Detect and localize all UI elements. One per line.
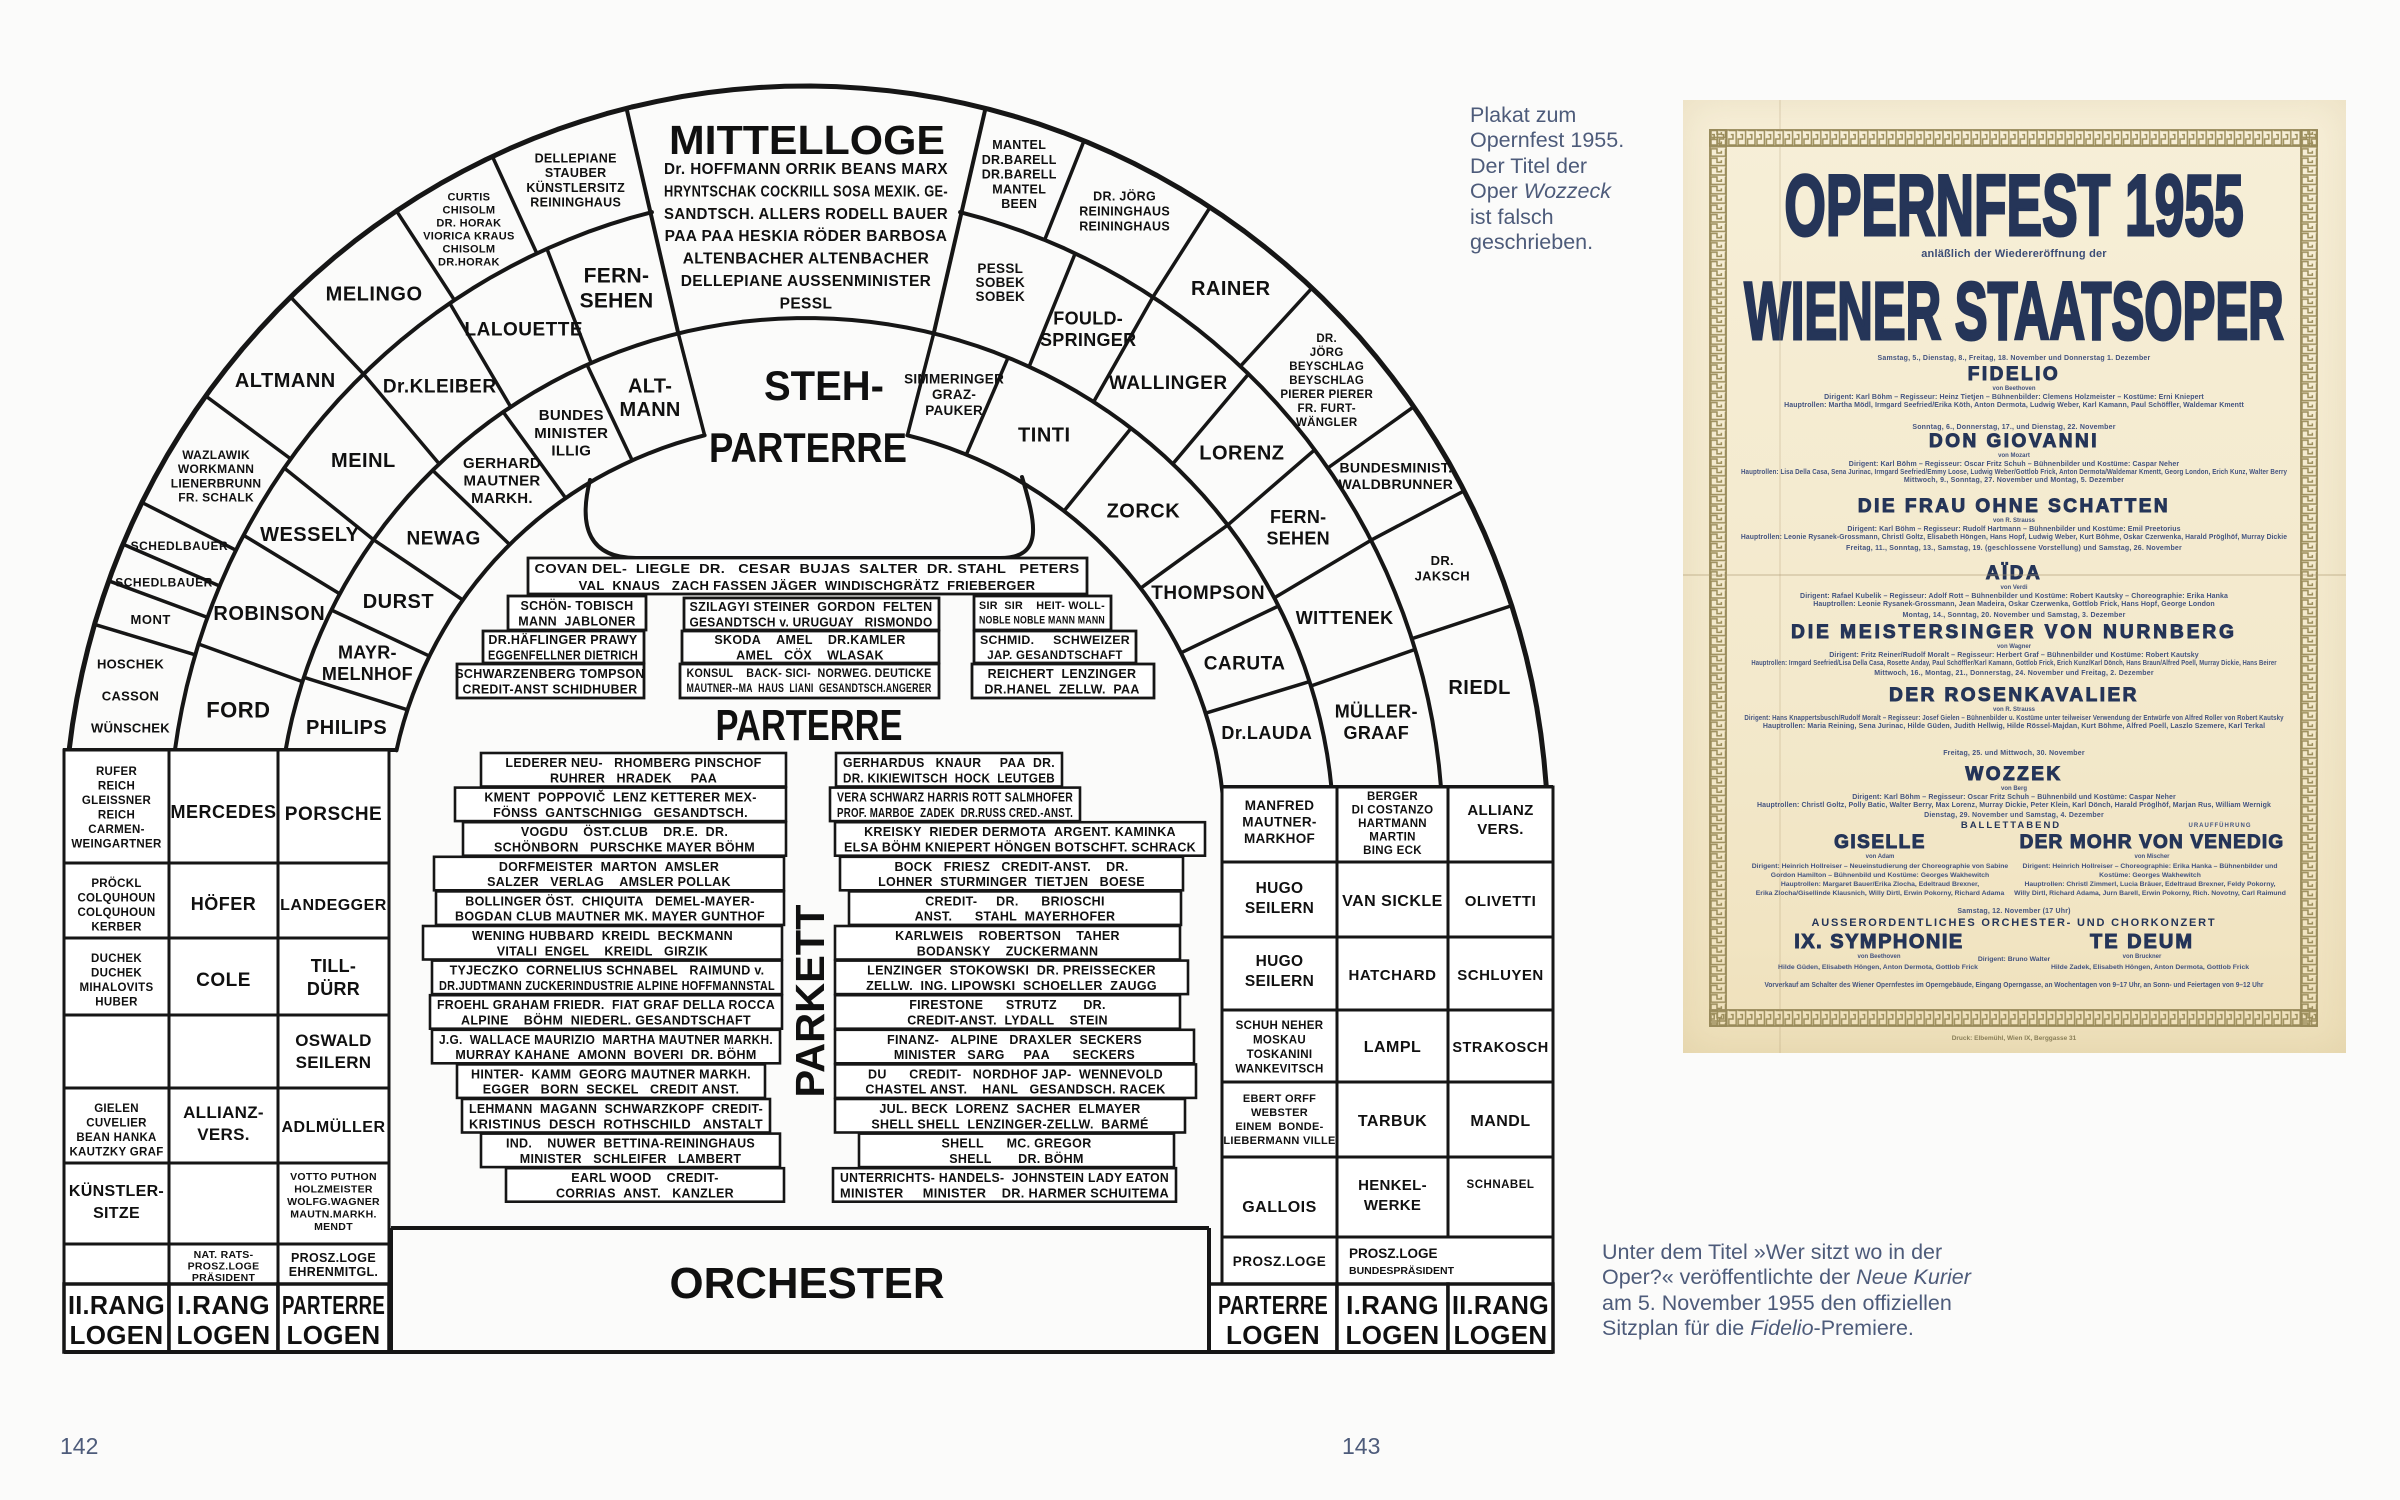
- svg-text:STRAKOSCH: STRAKOSCH: [1452, 1040, 1548, 1056]
- svg-text:ROBINSON: ROBINSON: [213, 603, 325, 625]
- svg-text:EARL WOOD CREDIT-CORRIAS A: EARL WOOD CREDIT-CORRIAS ANST. KANZLER: [556, 1171, 734, 1200]
- svg-text:I.RANGLOGEN: I.RANGLOGEN: [1346, 1290, 1440, 1350]
- svg-text:MONT: MONT: [131, 612, 171, 627]
- svg-text:THOMPSON: THOMPSON: [1151, 583, 1265, 604]
- svg-text:WITTENEK: WITTENEK: [1296, 608, 1394, 628]
- svg-text:RIEDL: RIEDL: [1448, 677, 1511, 699]
- svg-text:TARBUK: TARBUK: [1358, 1113, 1427, 1130]
- svg-text:VERA SCHWARZ HARRIS ROTT SALMH: VERA SCHWARZ HARRIS ROTT SALMHOFERPROF. …: [837, 791, 1073, 820]
- svg-text:FIRESTONE STRUTZ DR: FIRESTONE STRUTZ DR.CREDIT-ANST. LYDALL …: [907, 998, 1108, 1027]
- svg-text:NEWAG: NEWAG: [407, 529, 481, 550]
- svg-text:SCHEDLBAUER: SCHEDLBAUER: [115, 575, 213, 589]
- svg-text:Dr. HOFFMANN ORRIK BEANS MARXH: Dr. HOFFMANN ORRIK BEANS MARXHRYNTSCHAK …: [664, 161, 948, 312]
- svg-text:MITTELLOGE: MITTELLOGE: [669, 117, 945, 163]
- svg-text:TINTI: TINTI: [1018, 425, 1071, 447]
- svg-text:VAN SICKLE: VAN SICKLE: [1342, 893, 1443, 910]
- svg-text:MANDL: MANDL: [1470, 1113, 1530, 1130]
- svg-text:DR.JÖRGBEYSCHLAGBEYSCHLAGPIERE: DR.JÖRGBEYSCHLAGBEYSCHLAGPIERER PIERERFR…: [1280, 333, 1373, 429]
- svg-text:MANFREDMAUTNER-MARKHOF: MANFREDMAUTNER-MARKHOF: [1242, 798, 1316, 846]
- svg-text:HOSCHEKCASSONWÜNSCHEK: HOSCHEKCASSONWÜNSCHEK: [91, 656, 170, 735]
- svg-text:BOCK FRIESZ CREDIT-ANST.: BOCK FRIESZ CREDIT-ANST. DR.LOHNER STURM…: [878, 860, 1145, 889]
- svg-text:HÖFER: HÖFER: [191, 894, 257, 914]
- svg-text:RAINER: RAINER: [1191, 278, 1271, 300]
- svg-text:PROSZ.LOGE: PROSZ.LOGE: [1233, 1254, 1327, 1269]
- svg-text:SHELL MC. GREGORSHELL: SHELL MC. GREGORSHELL DR. BÖHM: [941, 1137, 1091, 1166]
- svg-text:ADLMÜLLER: ADLMÜLLER: [281, 1117, 385, 1136]
- svg-text:GERHARDMAUTNERMARKH.: GERHARDMAUTNERMARKH.: [463, 455, 541, 507]
- svg-text:J.G. WALLACE MAURIZIO MARTHA: J.G. WALLACE MAURIZIO MARTHA MAUTNER MAR…: [439, 1033, 773, 1062]
- svg-text:SKODA AMEL DR.KAMLERAMEL: SKODA AMEL DR.KAMLERAMEL CÖX WLASAK: [714, 633, 905, 663]
- svg-text:LEHMANN MAGANN SCHWARZKOPF: LEHMANN MAGANN SCHWARZKOPF CREDIT-KRISTI…: [469, 1102, 763, 1131]
- svg-text:II.RANGLOGEN: II.RANGLOGEN: [1452, 1290, 1549, 1350]
- svg-text:GERHARDUS KNAUR PAA DR.: GERHARDUS KNAUR PAA DR.DR. KIKIEWITSCH H…: [843, 756, 1055, 785]
- svg-text:PESSLSOBEKSOBEK: PESSLSOBEKSOBEK: [976, 261, 1026, 304]
- svg-text:GALLOIS: GALLOIS: [1242, 1199, 1317, 1216]
- svg-text:PARTERRE: PARTERRE: [716, 701, 903, 750]
- svg-text:PARTERRE: PARTERRE: [709, 424, 907, 471]
- svg-text:KREISKY RIEDER DERMOTA ARGEN: KREISKY RIEDER DERMOTA ARGENT. KAMINKAEL…: [844, 825, 1196, 854]
- svg-text:JUL. BECK LORENZ SACHER ELM: JUL. BECK LORENZ SACHER ELMAYERSHELL SHE…: [871, 1102, 1148, 1131]
- svg-text:WAZLAWIKWORKMANNLIENERBRUNNFR.: WAZLAWIKWORKMANNLIENERBRUNNFR. SCHALK: [171, 448, 262, 505]
- svg-text:HINTER- KAMM GEORG MAUTNER M: HINTER- KAMM GEORG MAUTNER MARKH.EGGER B…: [471, 1067, 751, 1096]
- svg-text:Dr.KLEIBER: Dr.KLEIBER: [383, 376, 497, 397]
- svg-text:PROSZ.LOGE: PROSZ.LOGE: [1349, 1246, 1438, 1261]
- svg-text:I.RANGLOGEN: I.RANGLOGEN: [177, 1290, 271, 1350]
- svg-text:FROEHL GRAHAM FRIEDR. FIAT GR: FROEHL GRAHAM FRIEDR. FIAT GRAF DELLA RO…: [437, 998, 775, 1027]
- svg-text:HATCHARD: HATCHARD: [1349, 967, 1437, 984]
- svg-text:MAYR-MELNHOF: MAYR-MELNHOF: [322, 643, 413, 684]
- svg-text:MEINL: MEINL: [331, 450, 396, 472]
- svg-text:LANDEGGER: LANDEGGER: [280, 897, 387, 914]
- svg-text:WALLINGER: WALLINGER: [1109, 373, 1228, 394]
- svg-text:BUNDESMINIST.WALDBRUNNER: BUNDESMINIST.WALDBRUNNER: [1339, 460, 1454, 493]
- svg-text:BUNDESPRÄSIDENT: BUNDESPRÄSIDENT: [1349, 1264, 1455, 1277]
- svg-text:DR. JÖRGREININGHAUSREININGHAUS: DR. JÖRGREININGHAUSREININGHAUS: [1079, 189, 1170, 234]
- svg-text:ORCHESTER: ORCHESTER: [670, 1259, 945, 1308]
- svg-text:NAT. RATS-PROSZ.LOGEPRÄSIDENT: NAT. RATS-PROSZ.LOGEPRÄSIDENT: [188, 1249, 260, 1284]
- svg-text:LENZINGER STOKOWSKI DR. PREI: LENZINGER STOKOWSKI DR. PREISSECKERZELLW…: [866, 964, 1157, 993]
- svg-text:MERCEDES: MERCEDES: [170, 802, 276, 822]
- svg-text:LORENZ: LORENZ: [1199, 442, 1284, 464]
- svg-text:FERN-SEHEN: FERN-SEHEN: [580, 265, 654, 313]
- svg-text:SCHNABEL: SCHNABEL: [1467, 1179, 1535, 1191]
- svg-text:FOULD-SPRINGER: FOULD-SPRINGER: [1040, 309, 1136, 350]
- svg-text:COLE: COLE: [196, 970, 251, 991]
- svg-text:PARTERRELOGEN: PARTERRELOGEN: [1218, 1290, 1328, 1350]
- svg-text:PROSZ.LOGEEHRENMITGL.: PROSZ.LOGEEHRENMITGL.: [289, 1251, 378, 1279]
- svg-text:PARKETT: PARKETT: [787, 905, 833, 1098]
- svg-text:MÜLLER-GRAAF: MÜLLER-GRAAF: [1335, 702, 1418, 743]
- svg-text:CREDIT- DR. BRIOSCHIA: CREDIT- DR. BRIOSCHIANST. STAHL MAYERHOF…: [915, 894, 1116, 923]
- svg-text:KARLWEIS ROBERTSON TAHER: KARLWEIS ROBERTSON TAHERBODANSKY ZUCKERM…: [895, 929, 1120, 958]
- svg-text:LAMPL: LAMPL: [1364, 1039, 1422, 1056]
- svg-text:DORFMEISTER MARTON AMSLERSAL: DORFMEISTER MARTON AMSLERSALZER VERLAG A…: [487, 860, 731, 889]
- svg-text:WENING HUBBARD KREIDL BECKMA: WENING HUBBARD KREIDL BECKMANNVITALI ENG…: [472, 929, 733, 958]
- svg-text:ALTMANN: ALTMANN: [235, 370, 336, 392]
- svg-text:DU CREDIT- NORDHOF JAP-: DU CREDIT- NORDHOF JAP- WENNEVOLDCHASTEL…: [865, 1067, 1165, 1096]
- svg-text:UNTERRICHTS- HANDELS- JOHNSTE: UNTERRICHTS- HANDELS- JOHNSTEIN LADY EAT…: [840, 1171, 1169, 1200]
- svg-text:FERN-SEHEN: FERN-SEHEN: [1266, 507, 1330, 548]
- svg-text:CARUTA: CARUTA: [1204, 654, 1286, 675]
- svg-text:CURTISCHISOLMDR. HORAKVIORICA: CURTISCHISOLMDR. HORAKVIORICA KRAUSCHISO…: [423, 191, 515, 268]
- svg-text:Dr.LAUDA: Dr.LAUDA: [1221, 723, 1312, 743]
- svg-text:MANTELDR.BARELLDR.BARELLMANTEL: MANTELDR.BARELLDR.BARELLMANTELBEEN: [982, 138, 1057, 211]
- svg-text:II.RANGLOGEN: II.RANGLOGEN: [68, 1290, 165, 1350]
- svg-text:DR.JAKSCH: DR.JAKSCH: [1415, 553, 1470, 583]
- svg-text:SZILAGYI STEINER GORDON FELT: SZILAGYI STEINER GORDON FELTENGESANDTSCH…: [690, 600, 933, 630]
- svg-text:SCHEDLBAUER: SCHEDLBAUER: [131, 539, 229, 553]
- svg-text:MELINGO: MELINGO: [326, 284, 423, 306]
- svg-text:SCHLUYEN: SCHLUYEN: [1457, 967, 1544, 984]
- svg-text:FINANZ- ALPINE DRAXLER SE: FINANZ- ALPINE DRAXLER SECKERSMINISTER S…: [887, 1033, 1142, 1062]
- svg-text:PORSCHE: PORSCHE: [285, 804, 382, 825]
- svg-text:TYJECZKO CORNELIUS SCHNABEL: TYJECZKO CORNELIUS SCHNABEL RAIMUND v.DR…: [439, 964, 775, 993]
- svg-text:DELLEPIANESTAUBERKÜNSTLERSITZR: DELLEPIANESTAUBERKÜNSTLERSITZREININGHAUS: [526, 151, 625, 209]
- svg-text:ALT-MANN: ALT-MANN: [619, 375, 680, 421]
- svg-text:PARTERRELOGEN: PARTERRELOGEN: [282, 1290, 385, 1350]
- svg-text:LALOUETTE: LALOUETTE: [465, 320, 584, 341]
- svg-text:SCHWARZENBERG TOMPSONCREDIT-AN: SCHWARZENBERG TOMPSONCREDIT-ANST SCHIDHU…: [455, 667, 644, 697]
- svg-text:FORD: FORD: [206, 697, 270, 722]
- svg-text:OLIVETTI: OLIVETTI: [1465, 893, 1537, 910]
- svg-text:WESSELY: WESSELY: [260, 524, 360, 546]
- svg-text:ZORCK: ZORCK: [1107, 501, 1181, 523]
- svg-text:REICHERT LENZINGERDR.HANEL Z: REICHERT LENZINGERDR.HANEL ZELLW. PAA: [984, 667, 1139, 697]
- svg-text:IND. NUWER BETTINA-REINING: IND. NUWER BETTINA-REININGHAUSMINISTER S…: [506, 1137, 755, 1166]
- svg-text:PHILIPS: PHILIPS: [306, 717, 387, 739]
- svg-text:DURST: DURST: [363, 591, 434, 613]
- svg-text:BUNDESMINISTERILLIG: BUNDESMINISTERILLIG: [534, 407, 608, 459]
- svg-text:STEH-: STEH-: [764, 362, 884, 409]
